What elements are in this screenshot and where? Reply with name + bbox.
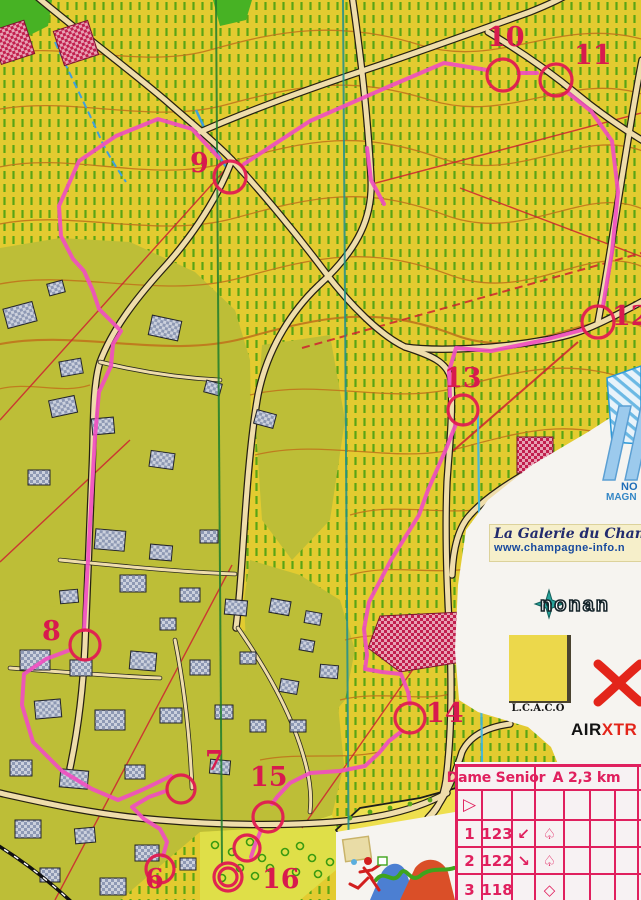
card-class-name: Dame Senior [458, 767, 536, 791]
card-row3-direction-symbol [513, 875, 536, 900]
nonan-logo-text: nonan [540, 594, 610, 617]
card-row2-feature-symbol: ♤ [536, 848, 565, 875]
blue-logo-text-line2: MAGN [606, 492, 637, 503]
control-number-7: 7 [205, 746, 224, 777]
card-row3-code: 118 [483, 875, 513, 900]
card-start-symbol: ▷ [458, 791, 483, 821]
orienteering-map-scan: 6 7 8 9 10 11 12 13 14 15 16 [0, 0, 641, 900]
lcaco-logo-text: L.C.A.C.O [503, 703, 573, 714]
control-description-card: Dame Senior A 2,3 km ▷ 1 123 ↙ ♤ 2 122 ↘… [455, 764, 641, 900]
champagne-banner: La Galerie du Champa www.champagne-info.… [489, 524, 641, 562]
card-row1-feature-symbol: ♤ [536, 821, 565, 848]
airxtrem-logo-text: AIRXTR [571, 720, 641, 740]
card-row2-code: 122 [483, 848, 513, 875]
card-course-info: A 2,3 km [536, 767, 639, 791]
control-number-12: 12 [612, 301, 641, 332]
lcaco-logo-box [509, 635, 571, 703]
card-row2-number: 2 [458, 848, 483, 875]
control-number-15: 15 [250, 762, 288, 793]
control-number-11: 11 [574, 40, 612, 71]
card-row1-number: 1 [458, 821, 483, 848]
champagne-url: www.champagne-info.n [494, 542, 641, 554]
card-row1-direction-symbol: ↙ [513, 821, 536, 848]
nonan-logo: nonan [536, 590, 641, 620]
control-number-6: 6 [145, 864, 164, 895]
control-number-13: 13 [444, 363, 482, 394]
airxtrem-text-air: AIR [571, 720, 602, 739]
control-number-14: 14 [426, 698, 464, 729]
card-row3-number: 3 [458, 875, 483, 900]
control-number-8: 8 [42, 616, 61, 647]
control-number-16: 16 [262, 864, 300, 895]
airxtrem-text-xtr: XTR [602, 720, 638, 739]
card-row2-direction-symbol: ↘ [513, 848, 536, 875]
control-number-10: 10 [487, 22, 525, 53]
champagne-title: La Galerie du Champa [494, 526, 641, 542]
card-row3-feature-symbol: ◇ [536, 875, 565, 900]
card-row1-code: 123 [483, 821, 513, 848]
control-number-9: 9 [190, 148, 209, 179]
